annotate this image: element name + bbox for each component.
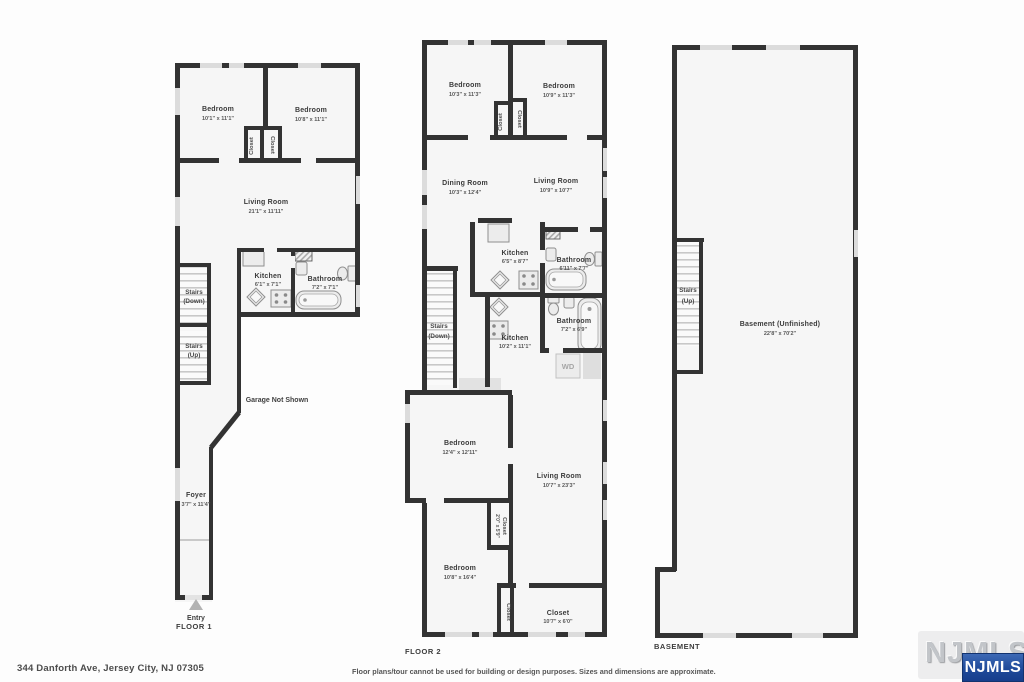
- floor2-closet4-label: Closet: [505, 603, 511, 621]
- floor1-entry-label: Entry: [187, 615, 205, 622]
- floor2-kitchen-upper-name: Kitchen: [501, 250, 528, 257]
- property-address: 344 Danforth Ave, Jersey City, NJ 07305: [17, 663, 204, 674]
- floor2-bedroom4-dims: 10'8" x 16'4": [444, 575, 477, 581]
- floor2-wd-label: WD: [562, 362, 575, 371]
- floorplan-page: Bedroom 10'1" x 11'1" Bedroom 10'8" x 11…: [0, 0, 1024, 682]
- floor2-bathroom-upper-name: Bathroom: [557, 257, 592, 264]
- floor2-stairs-label1: Stairs: [430, 323, 448, 330]
- floor2-dining-dims: 10'3" x 12'4": [449, 190, 482, 196]
- basement-room-name: Basement (Unfinished): [740, 321, 820, 328]
- toilet-icon: [548, 297, 559, 315]
- floor1-kitchen-name: Kitchen: [254, 273, 281, 280]
- floor1-bedroom1-dims: 10'1" x 11'1": [202, 116, 234, 122]
- bathtub-icon: [546, 269, 586, 290]
- floor2-bedroom1-dims: 10'3" x 11'3": [449, 92, 481, 98]
- floor2-title: FLOOR 2: [405, 647, 441, 656]
- bathtub-icon: [578, 298, 601, 353]
- fridge-icon: [243, 251, 264, 266]
- floor1-closet1-label: Closet: [249, 137, 255, 155]
- stove-icon: [519, 271, 538, 289]
- floor2-bedroom3-name: Bedroom: [444, 440, 476, 447]
- floor2-kitchen-lower-name: Kitchen: [501, 335, 528, 342]
- njmls-logo-text: NJMLS: [965, 659, 1022, 677]
- floor2-kitchen-upper-dims: 6'5" x 8'7": [502, 259, 529, 265]
- floor2-bedroom3-dims: 12'4" x 12'11": [442, 450, 477, 456]
- floor2-closet3-name: Closet: [501, 517, 507, 535]
- floor2-bedroom4-name: Bedroom: [444, 565, 476, 572]
- bathroom-sink-icon: [296, 262, 307, 275]
- floor2-dining-name: Dining Room: [442, 180, 488, 187]
- floor1-living-dims: 21'1" x 11'11": [249, 209, 284, 215]
- floor1-foyer-name: Foyer: [186, 492, 206, 499]
- floor1-title: FLOOR 1: [176, 622, 212, 631]
- floor1-living-name: Living Room: [244, 199, 289, 206]
- floor2-bathroom-lower-dims: 7'2" x 6'9": [561, 327, 588, 333]
- floor1-stairs-down-label2: (Down): [183, 298, 204, 305]
- floorplan-canvas: Bedroom 10'1" x 11'1" Bedroom 10'8" x 11…: [0, 0, 1024, 682]
- floor1-kitchen-dims: 6'1" x 7'1": [255, 282, 282, 288]
- floor1-stairs-up-label1: Stairs: [185, 343, 203, 350]
- bathroom-sink-icon: [564, 297, 574, 308]
- floor1-plan: Bedroom 10'1" x 11'1" Bedroom 10'8" x 11…: [175, 63, 360, 631]
- floor2-kitchen-lower-dims: 10'2" x 11'1": [499, 344, 531, 350]
- floor1-stairs-down-label1: Stairs: [185, 289, 203, 296]
- floor1-bathroom-dims: 7'2" x 7'1": [312, 285, 339, 291]
- basement-plan: Stairs (Up) Basement (Unfinished) 22'8" …: [654, 45, 858, 651]
- floor1-bedroom2-dims: 10'8" x 11'1": [295, 117, 327, 123]
- floor2-plan: Bedroom 10'3" x 11'3" Bedroom 10'9" x 11…: [405, 40, 607, 656]
- floor2-closet1-label: Closet: [498, 113, 504, 131]
- floor1-stairs-up-label2: (Up): [188, 352, 201, 359]
- floor2-bedroom2-name: Bedroom: [543, 83, 575, 90]
- basement-stairs-label2: (Up): [682, 298, 695, 305]
- floor2-living-upper-dims: 10'9" x 10'7": [540, 188, 573, 194]
- floor2-living-upper-name: Living Room: [534, 178, 579, 185]
- stove-icon: [271, 290, 291, 307]
- floor2-closet5-name: Closet: [547, 610, 570, 617]
- floor2-bedroom2-dims: 10'9" x 11'3": [543, 93, 575, 99]
- floor2-closet5-dims: 10'7" x 6'0": [543, 619, 573, 625]
- fridge-icon: [488, 224, 509, 242]
- floor2-stairs-label2: (Down): [428, 333, 449, 340]
- floor2-living-lower-name: Living Room: [537, 473, 582, 480]
- floor2-bathroom-lower-name: Bathroom: [557, 318, 592, 325]
- basement-room-dims: 22'8" x 70'2": [764, 331, 797, 337]
- floor2-bedroom1-name: Bedroom: [449, 82, 481, 89]
- floor2-closet3-dims: 2'0" x 5'9": [494, 514, 500, 538]
- floor1-bedroom1-name: Bedroom: [202, 106, 234, 113]
- floor1-bedroom2-name: Bedroom: [295, 107, 327, 114]
- basement-stairs-up: [677, 242, 699, 346]
- njmls-logo: NJMLS: [962, 653, 1024, 682]
- bathtub-icon: [296, 291, 341, 309]
- bathroom-sink-icon: [546, 248, 556, 261]
- floor2-closet2-label: Closet: [516, 110, 522, 128]
- basement-stairs-label1: Stairs: [679, 287, 697, 294]
- basement-title: BASEMENT: [654, 642, 700, 651]
- floor1-closet2-label: Closet: [269, 136, 275, 154]
- floor1-bathroom-name: Bathroom: [308, 276, 343, 283]
- floor1-foyer-dims: 3'7" x 11'4": [182, 502, 211, 508]
- floor2-bathroom-upper-dims: 6'11" x 7'7": [560, 266, 589, 272]
- floor1-garage-note: Garage Not Shown: [246, 397, 309, 404]
- disclaimer-text: Floor plans/tour cannot be used for buil…: [352, 667, 716, 676]
- floor2-living-lower-dims: 10'7" x 23'3": [543, 483, 576, 489]
